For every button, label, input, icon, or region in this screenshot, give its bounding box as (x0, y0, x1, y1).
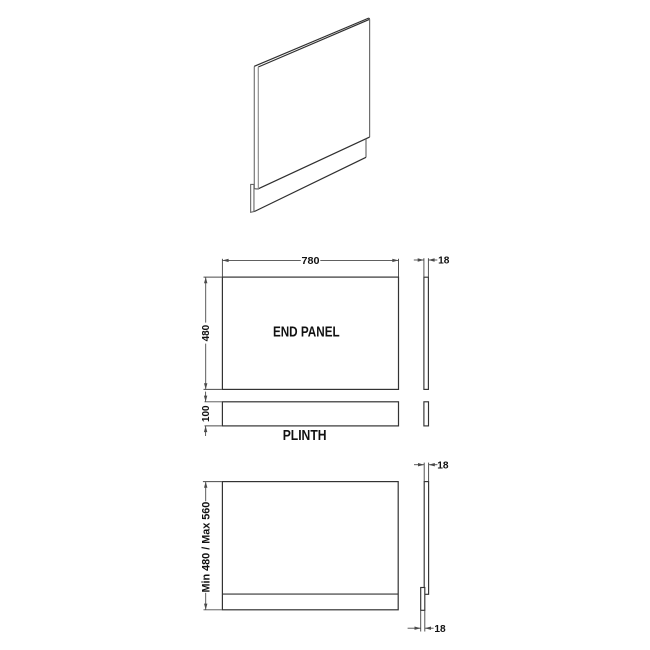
svg-text:18: 18 (438, 255, 449, 267)
svg-text:480: 480 (200, 325, 212, 342)
svg-text:Min 480 / Max 560: Min 480 / Max 560 (200, 502, 212, 593)
svg-text:PLINTH: PLINTH (283, 428, 327, 444)
svg-text:END PANEL: END PANEL (273, 324, 340, 341)
svg-text:100: 100 (200, 405, 212, 422)
svg-text:18: 18 (434, 623, 445, 635)
svg-text:780: 780 (302, 255, 320, 267)
svg-text:18: 18 (437, 459, 448, 471)
